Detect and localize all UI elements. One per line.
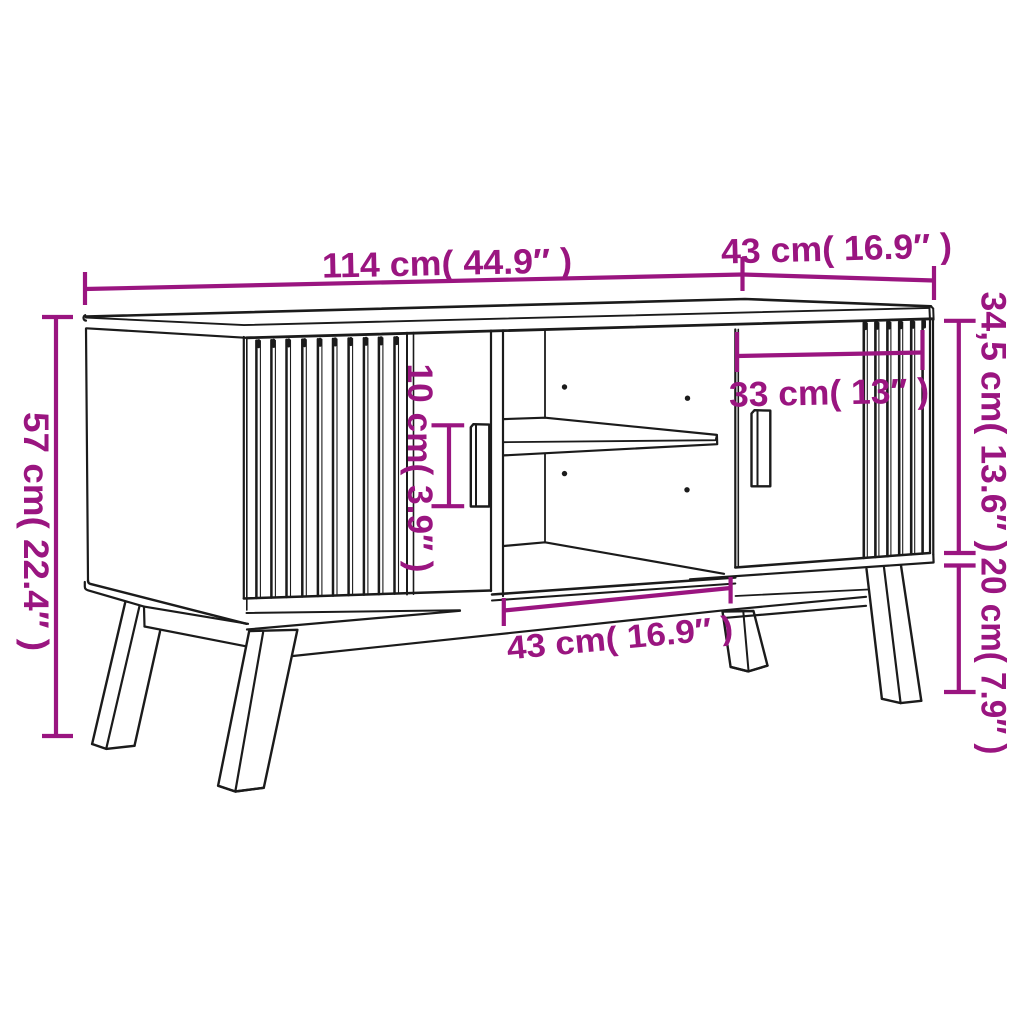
svg-text:33 cm( 13″ ): 33 cm( 13″ ) xyxy=(729,371,930,414)
svg-text:20 cm( 7.9″ ): 20 cm( 7.9″ ) xyxy=(974,558,1013,755)
svg-text:43 cm( 16.9″ ): 43 cm( 16.9″ ) xyxy=(721,226,953,271)
svg-text:57 cm( 22.4″ ): 57 cm( 22.4″ ) xyxy=(16,412,55,651)
svg-text:10 cm( 3.9″ ): 10 cm( 3.9″ ) xyxy=(400,364,439,573)
svg-text:114 cm( 44.9″ ): 114 cm( 44.9″ ) xyxy=(322,241,573,285)
svg-text:34,5 cm( 13.6″ ): 34,5 cm( 13.6″ ) xyxy=(974,292,1013,553)
